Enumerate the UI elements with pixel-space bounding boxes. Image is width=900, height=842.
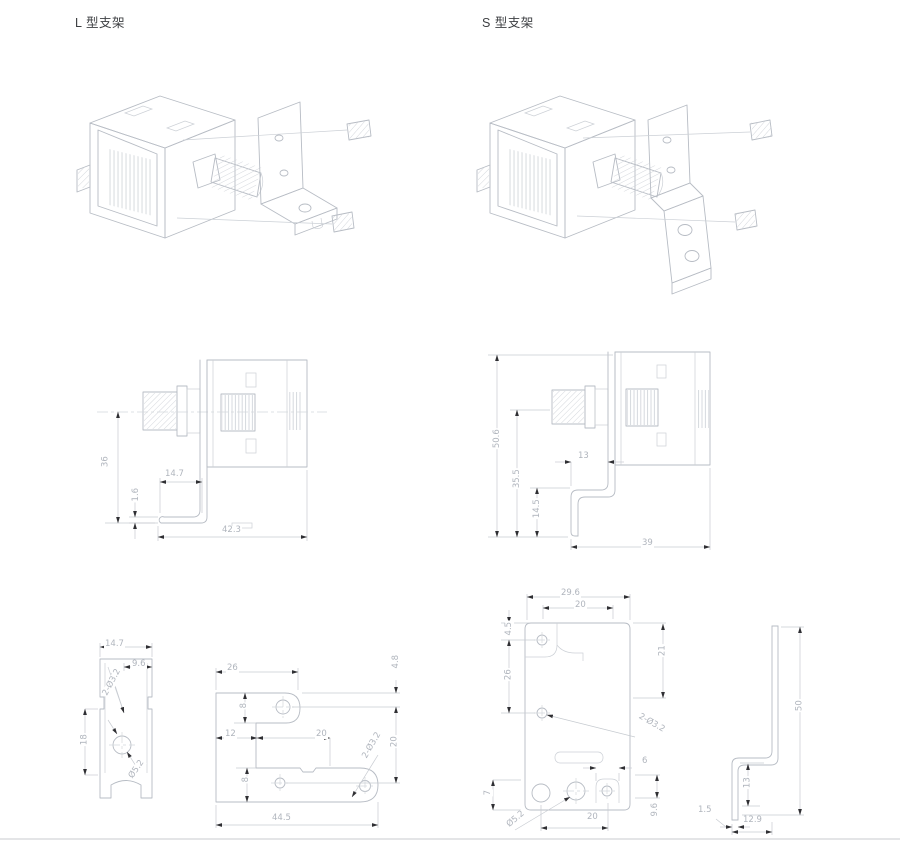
dim-label: 44.5 [271,814,292,823]
s-isometric-view [465,78,795,333]
threaded-port [143,386,200,436]
dim-label: 20 [586,813,599,822]
screws-iso [177,120,371,232]
device-outline [552,352,710,465]
dim-label: 9.6 [131,660,147,669]
threaded-port-iso [593,154,663,200]
dim-label: 50 [796,699,805,712]
dim-label: 13 [744,776,753,789]
dim-label: 8 [240,702,249,709]
dim-label: 20 [391,735,400,748]
threaded-port [552,386,608,428]
dimensions [488,355,710,550]
dim-label: 6 [641,757,648,766]
device-outline [97,360,327,528]
dim-label: 50.6 [493,428,502,449]
dim-label: 12 [224,730,237,739]
l-bracket-title: L 型支架 [75,12,125,31]
dim-label: 26 [505,668,514,681]
l-isometric-view [65,78,395,323]
s-dimensioned-side-view [480,340,725,555]
dim-label: 20 [574,601,587,610]
bracket-outline [732,626,778,820]
page-bottom-rule [0,838,900,840]
dim-label: 7 [484,789,493,796]
l-dimensioned-side-view [95,345,340,550]
l-bracket-flat-view [200,650,415,835]
dimensions [716,627,804,835]
bracket-outline [525,623,630,810]
dim-label: 1.5 [697,806,713,815]
s-bracket-iso [648,105,711,294]
dim-label: 21 [659,644,668,657]
dim-label: 14.5 [533,498,542,519]
l-bracket-iso [258,102,337,235]
dim-label: 8 [242,776,251,783]
dim-label: 14.7 [164,470,185,479]
s-bracket-title: S 型支架 [482,12,534,31]
dim-label: 14.7 [104,640,125,649]
dim-label: 26 [226,664,239,673]
dim-label: 39 [641,539,654,548]
dim-label: 18 [81,733,90,746]
dim-label: 12.9 [742,816,763,825]
drawing-page: L 型支架 S 型支架 [0,0,900,842]
dim-label: 35.5 [513,468,522,489]
dim-label: 36 [102,455,111,468]
dim-label: 20 [315,730,328,739]
device-body-iso [77,96,263,238]
dim-label: 4.5 [505,621,514,637]
dim-label: 1.6 [132,487,141,503]
threaded-port-iso [193,154,263,200]
l-bracket-outline [159,360,207,523]
dim-label: 9.6 [651,802,660,818]
l-bracket-face-view [78,615,198,830]
screws-iso [577,120,772,230]
dim-label: 13 [577,452,590,461]
s-bracket-profile-view [690,600,820,840]
dim-label: 29.6 [560,589,581,598]
dim-label: 42.3 [221,526,242,535]
device-body-iso [477,96,663,238]
dim-label: 4.8 [392,654,401,670]
s-bracket-outline [571,352,615,536]
